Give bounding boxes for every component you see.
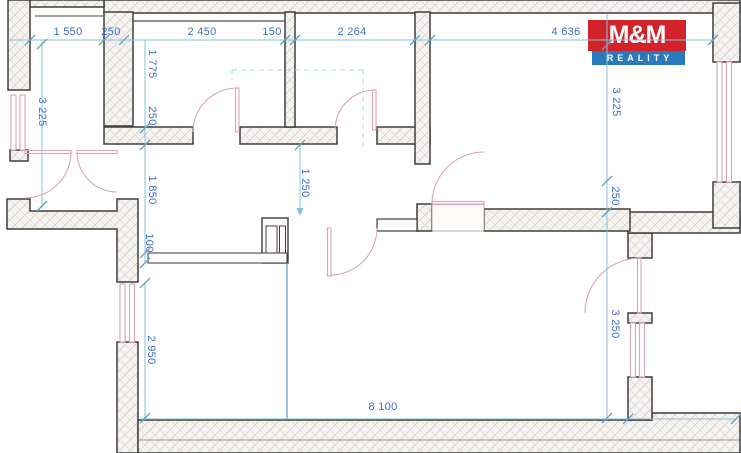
- floor-plan-page: 1 550 250 2 450 150 2 264 4 636 8 100 3 …: [0, 0, 741, 453]
- dimension-overlay: [0, 0, 741, 453]
